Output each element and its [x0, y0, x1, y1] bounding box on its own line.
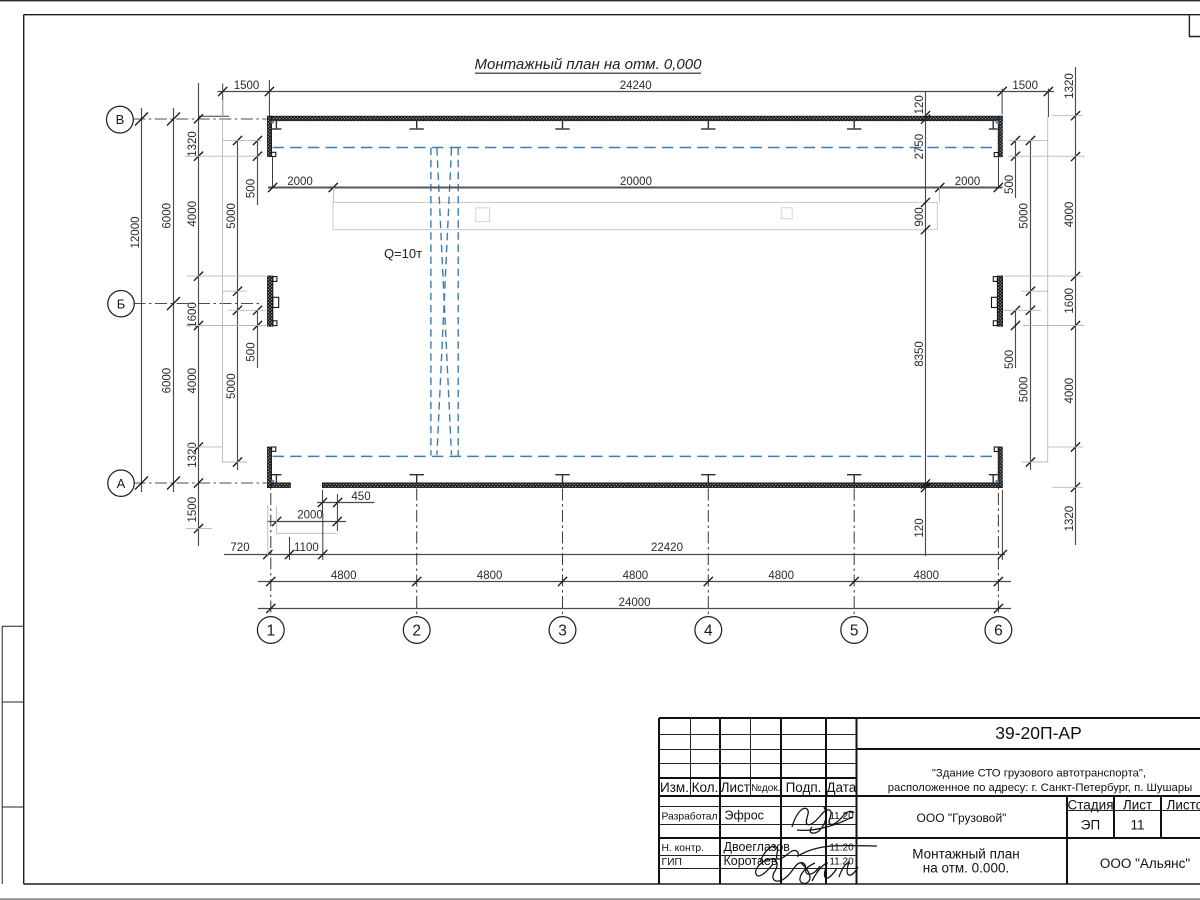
svg-text:39-20П-АР: 39-20П-АР: [995, 723, 1082, 743]
svg-text:500: 500: [245, 179, 257, 198]
svg-text:2000: 2000: [955, 176, 981, 188]
svg-text:3: 3: [558, 623, 567, 640]
svg-text:"Здание СТО грузового автотран: "Здание СТО грузового автотранспорта",: [932, 768, 1146, 780]
svg-text:12000: 12000: [130, 217, 142, 249]
svg-text:1600: 1600: [1064, 288, 1076, 314]
svg-text:№док.: №док.: [751, 783, 780, 794]
svg-text:120: 120: [914, 518, 926, 537]
svg-text:450: 450: [351, 491, 370, 503]
svg-text:2000: 2000: [297, 510, 323, 522]
svg-text:1500: 1500: [187, 497, 199, 523]
svg-text:4000: 4000: [1064, 202, 1076, 228]
svg-text:4000: 4000: [187, 368, 199, 394]
svg-text:6000: 6000: [161, 203, 173, 229]
svg-text:Коротаев: Коротаев: [724, 854, 778, 868]
svg-text:11.20: 11.20: [829, 843, 854, 854]
svg-text:4800: 4800: [914, 570, 940, 582]
svg-text:900: 900: [914, 207, 926, 226]
svg-text:5: 5: [850, 623, 859, 640]
svg-text:11: 11: [1130, 818, 1144, 833]
svg-text:Двоеглазов: Двоеглазов: [724, 840, 791, 854]
svg-text:Дата: Дата: [826, 780, 856, 795]
svg-text:5000: 5000: [1018, 203, 1030, 229]
svg-text:5000: 5000: [226, 203, 238, 229]
svg-text:1320: 1320: [1064, 73, 1076, 99]
svg-text:ООО "Грузовой": ООО "Грузовой": [917, 811, 1007, 825]
svg-text:1320: 1320: [187, 131, 199, 157]
svg-text:4000: 4000: [1064, 378, 1076, 404]
svg-text:Q=10т: Q=10т: [384, 246, 422, 261]
svg-text:расположенное по адресу: г. Са: расположенное по адресу: г. Санкт-Петерб…: [888, 782, 1192, 794]
svg-text:А: А: [117, 476, 126, 491]
svg-text:Изм.: Изм.: [660, 780, 689, 795]
svg-text:11.20: 11.20: [829, 857, 854, 868]
svg-text:Лист: Лист: [1123, 797, 1152, 812]
svg-text:500: 500: [1004, 350, 1016, 369]
svg-text:500: 500: [1004, 175, 1016, 194]
svg-text:1100: 1100: [294, 542, 319, 554]
svg-text:120: 120: [914, 95, 926, 114]
svg-text:720: 720: [230, 542, 249, 554]
svg-text:Листов: Листов: [1167, 797, 1200, 812]
svg-text:5000: 5000: [1018, 377, 1030, 403]
svg-text:6000: 6000: [161, 368, 173, 394]
svg-text:20000: 20000: [620, 176, 652, 188]
svg-text:Лист: Лист: [721, 780, 750, 795]
svg-text:1500: 1500: [1012, 80, 1038, 92]
svg-text:2000: 2000: [287, 176, 313, 188]
svg-text:4800: 4800: [623, 570, 649, 582]
svg-text:4000: 4000: [187, 201, 199, 227]
svg-text:5000: 5000: [226, 373, 238, 399]
svg-text:Н. контр.: Н. контр.: [662, 843, 705, 854]
svg-text:Кол.: Кол.: [692, 780, 719, 795]
svg-text:ЭП: ЭП: [1081, 818, 1100, 833]
svg-text:на отм. 0.000.: на отм. 0.000.: [923, 861, 1009, 876]
svg-text:2750: 2750: [914, 134, 926, 160]
svg-text:2: 2: [412, 623, 421, 640]
svg-text:Монтажный план: Монтажный план: [912, 847, 1020, 862]
svg-text:8350: 8350: [914, 341, 926, 367]
svg-text:4800: 4800: [768, 570, 794, 582]
svg-text:1320: 1320: [1064, 506, 1076, 532]
svg-text:Монтажный план на отм. 0,000: Монтажный план на отм. 0,000: [475, 56, 703, 73]
svg-text:4: 4: [704, 623, 713, 640]
svg-text:24000: 24000: [619, 597, 651, 609]
svg-text:6: 6: [994, 623, 1003, 640]
svg-text:11.20: 11.20: [829, 811, 854, 822]
svg-text:ООО "Альянс": ООО "Альянс": [1100, 856, 1190, 871]
svg-text:Б: Б: [117, 296, 126, 311]
svg-text:ГИП: ГИП: [662, 857, 682, 868]
svg-text:22420: 22420: [651, 542, 683, 554]
svg-text:Эфрос: Эфрос: [725, 809, 764, 823]
svg-text:1320: 1320: [187, 442, 199, 468]
svg-text:1600: 1600: [187, 302, 199, 328]
svg-text:1: 1: [266, 623, 275, 640]
svg-text:Подп.: Подп.: [786, 780, 822, 795]
svg-text:Стадия: Стадия: [1067, 797, 1113, 812]
svg-text:4800: 4800: [331, 570, 357, 582]
svg-text:500: 500: [245, 342, 257, 361]
svg-text:В: В: [116, 112, 125, 127]
svg-text:4800: 4800: [477, 570, 503, 582]
svg-text:Разработал: Разработал: [662, 811, 718, 823]
svg-text:1500: 1500: [234, 80, 260, 92]
svg-text:24240: 24240: [620, 80, 652, 92]
